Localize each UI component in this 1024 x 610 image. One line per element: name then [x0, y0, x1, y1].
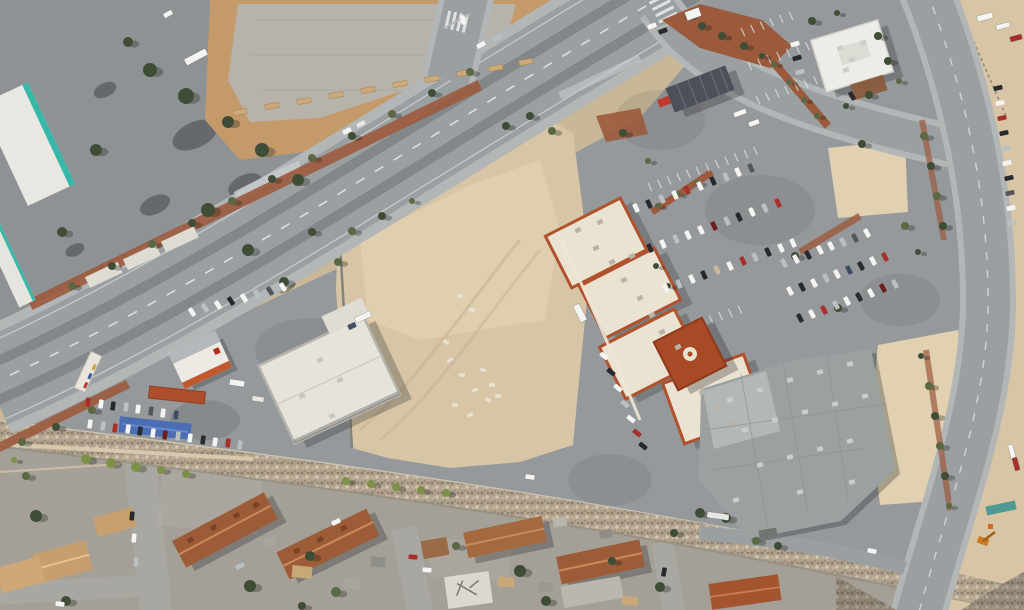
- tree: [88, 406, 96, 414]
- tree: [698, 22, 706, 30]
- tree: [759, 53, 765, 59]
- shed: [371, 556, 386, 567]
- tree-shadow: [661, 206, 667, 210]
- tree-shadow: [924, 356, 930, 360]
- tree: [920, 132, 928, 140]
- tree: [936, 442, 944, 450]
- car: [55, 601, 64, 606]
- tree: [939, 222, 947, 230]
- tree-shadow: [849, 106, 855, 110]
- tree: [308, 154, 316, 162]
- tree: [655, 203, 661, 209]
- tree: [242, 244, 254, 256]
- tree: [752, 537, 760, 545]
- car: [129, 511, 134, 520]
- tree-shadow: [777, 64, 783, 68]
- debris: [452, 403, 458, 407]
- tree: [843, 103, 849, 109]
- car: [408, 554, 417, 559]
- car: [131, 533, 136, 542]
- tree: [865, 91, 873, 99]
- shed: [498, 576, 515, 587]
- tree: [608, 557, 616, 565]
- tree: [931, 412, 939, 420]
- tree: [244, 580, 256, 592]
- tree: [695, 508, 705, 518]
- tree-shadow: [902, 81, 908, 85]
- tree: [81, 454, 91, 464]
- tree-shadow: [921, 252, 927, 256]
- tree-shadow: [17, 460, 23, 464]
- tree: [228, 197, 236, 205]
- tree: [22, 472, 30, 480]
- tree: [925, 382, 933, 390]
- tree: [619, 129, 627, 137]
- tree: [814, 113, 820, 119]
- tree: [653, 263, 659, 269]
- tree: [409, 198, 415, 204]
- tree: [11, 457, 17, 463]
- tree: [388, 110, 396, 118]
- tree-shadow: [651, 161, 657, 165]
- tree: [298, 602, 306, 610]
- tree: [268, 175, 276, 183]
- tree: [18, 438, 26, 446]
- tree: [896, 78, 902, 84]
- tree: [392, 483, 400, 491]
- tree: [222, 116, 234, 128]
- tree-shadow: [681, 194, 687, 198]
- car: [422, 567, 431, 572]
- shed: [539, 582, 554, 592]
- shed: [622, 596, 639, 606]
- tree: [123, 37, 133, 47]
- tree: [30, 510, 42, 522]
- tree: [417, 486, 425, 494]
- tree: [526, 112, 534, 120]
- aerial-orthophoto: [0, 0, 1024, 610]
- tree: [334, 258, 342, 266]
- tree-shadow: [840, 13, 846, 17]
- tree: [342, 477, 350, 485]
- tree-shadow: [415, 201, 421, 205]
- tree: [946, 503, 952, 509]
- tree: [106, 458, 116, 468]
- tree: [740, 42, 748, 50]
- tree: [834, 10, 840, 16]
- debris: [495, 394, 501, 398]
- tree-shadow: [820, 116, 826, 120]
- tree: [131, 462, 141, 472]
- tree: [502, 122, 510, 130]
- tree: [305, 551, 315, 561]
- tree: [90, 144, 102, 156]
- tree: [901, 222, 909, 230]
- tree: [718, 32, 726, 40]
- car: [133, 557, 138, 566]
- tree: [428, 89, 436, 97]
- tree: [188, 219, 196, 227]
- tree: [68, 282, 76, 290]
- tree: [808, 17, 816, 25]
- tree: [452, 542, 460, 550]
- tree: [915, 249, 921, 255]
- debris: [459, 373, 465, 377]
- tree: [801, 97, 807, 103]
- tree: [941, 472, 949, 480]
- tree: [308, 228, 316, 236]
- tree: [143, 63, 157, 77]
- tree-shadow: [765, 56, 771, 60]
- tree: [57, 227, 67, 237]
- shed: [291, 565, 312, 579]
- tree: [108, 262, 116, 270]
- orange-equipment: [988, 524, 993, 529]
- tree: [157, 466, 165, 474]
- tree: [178, 88, 194, 104]
- tree: [933, 192, 941, 200]
- tree: [874, 32, 882, 40]
- tree: [348, 132, 356, 140]
- tree: [670, 529, 678, 537]
- tree-shadow: [671, 286, 677, 290]
- tree: [548, 127, 556, 135]
- tree: [378, 212, 386, 220]
- tree: [927, 162, 935, 170]
- tree: [771, 61, 777, 67]
- tree: [774, 542, 782, 550]
- white-roof-house: [444, 571, 493, 609]
- tree: [52, 423, 60, 431]
- tree: [331, 587, 341, 597]
- tree: [645, 158, 651, 164]
- tree-shadow: [807, 100, 813, 104]
- tree: [786, 79, 792, 85]
- tree: [148, 240, 156, 248]
- tree: [541, 596, 551, 606]
- tree: [182, 470, 190, 478]
- shed: [343, 578, 362, 590]
- tree-shadow: [792, 82, 798, 86]
- tree-shadow: [659, 266, 665, 270]
- tree-shadow: [952, 506, 958, 510]
- tree: [918, 353, 924, 359]
- tree: [367, 480, 375, 488]
- tree: [884, 57, 892, 65]
- tree: [514, 565, 526, 577]
- tree: [255, 143, 269, 157]
- tree: [292, 174, 304, 186]
- tree: [655, 582, 665, 592]
- tree: [201, 203, 215, 217]
- tree: [348, 227, 356, 235]
- tree: [442, 489, 450, 497]
- aerial-photo-stage: [0, 0, 1024, 610]
- tree: [858, 140, 866, 148]
- tree: [466, 68, 474, 76]
